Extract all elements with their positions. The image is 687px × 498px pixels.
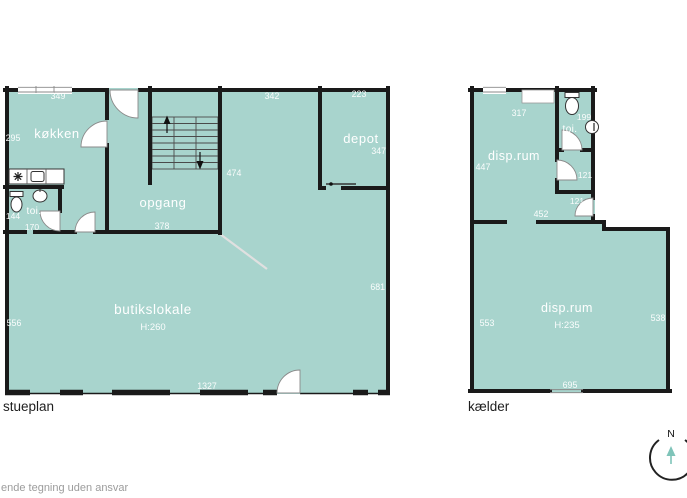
north-arrow-icon <box>667 446 676 464</box>
room-label-disp-rum-lower: disp.rum <box>541 301 593 315</box>
measurement: 378 <box>155 221 170 231</box>
measurement: 447 <box>476 162 491 172</box>
ceiling-height-label: H:235 <box>554 320 579 331</box>
measurement: 553 <box>480 318 495 328</box>
kitchen-counter <box>9 169 64 184</box>
ceiling-height-label: H:260 <box>140 322 165 333</box>
room-label-disp-rum-upper: disp.rum <box>488 149 540 163</box>
disclaimer-text: ende tegning uden ansvar <box>1 482 129 494</box>
plan-title-stueplan: stueplan <box>3 399 54 414</box>
room-label-depot: depot <box>343 131 379 146</box>
plan-title-kaelder: kælder <box>468 399 510 414</box>
measurement: 452 <box>534 209 549 219</box>
window-icon <box>483 85 506 94</box>
measurement: 139 <box>123 104 138 114</box>
floorplan-drawing: 349 139 295 køkken 342 223 474 depot 347… <box>0 0 687 498</box>
measurement: 121 <box>578 170 592 180</box>
toilet-icon <box>10 192 23 213</box>
measurement: 170 <box>25 222 39 232</box>
compass-icon: N <box>650 428 687 480</box>
room-label-toilet: toi. <box>563 124 578 135</box>
measurement: 349 <box>51 91 66 101</box>
floorplan-canvas: 349 139 295 køkken 342 223 474 depot 347… <box>0 0 687 498</box>
measurement: 474 <box>227 168 242 178</box>
measurement: 347 <box>371 146 386 156</box>
measurement: 556 <box>7 318 22 328</box>
room-label-butikslokale: butikslokale <box>114 302 192 317</box>
measurement: 121 <box>570 196 584 206</box>
floor-plan-kaelder: 317 disp.rum 447 199 toi. 121 121 452 di… <box>468 85 670 414</box>
kitchen-sink-icon <box>31 172 44 182</box>
measurement: 681 <box>370 282 385 292</box>
cupboard-fixture <box>522 90 554 103</box>
room-label-toilet: toi. <box>27 206 42 217</box>
measurement: 342 <box>265 91 280 101</box>
measurement: 695 <box>563 380 578 390</box>
measurement: 295 <box>6 133 21 143</box>
measurement: 144 <box>6 211 20 221</box>
stove-icon <box>14 172 23 181</box>
measurement: 223 <box>352 89 367 99</box>
sink-icon <box>586 121 599 134</box>
room-label-kokken: køkken <box>34 126 80 141</box>
compass-north-label: N <box>667 428 675 440</box>
floor-plan-stueplan: 349 139 295 køkken 342 223 474 depot 347… <box>3 85 390 414</box>
measurement: 1327 <box>197 381 217 391</box>
measurement: 538 <box>651 313 666 323</box>
room-label-opgang: opgang <box>140 195 187 210</box>
measurement: 199 <box>577 112 591 122</box>
measurement: 317 <box>512 108 527 118</box>
